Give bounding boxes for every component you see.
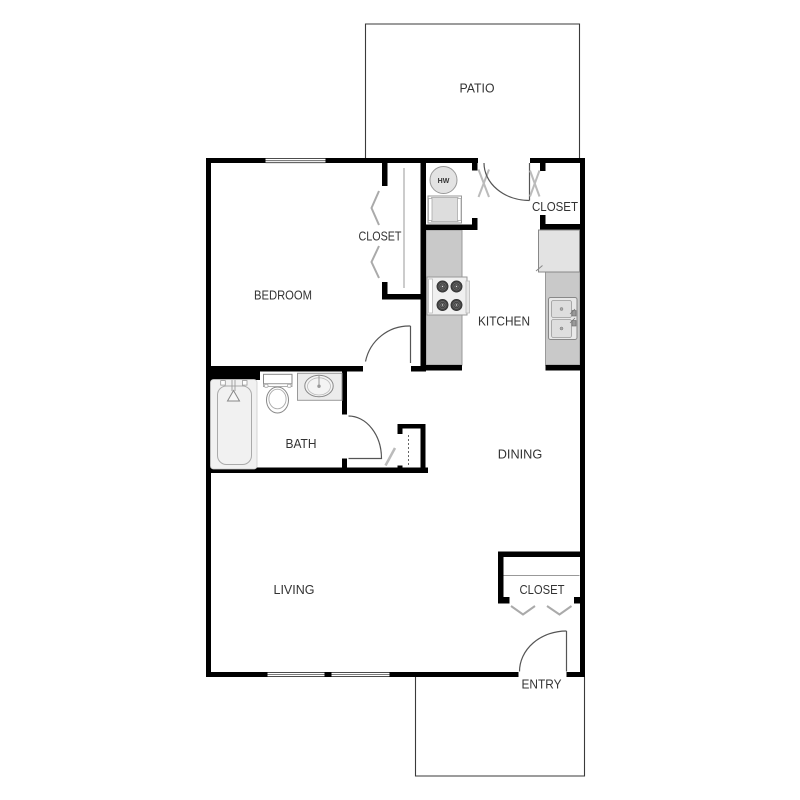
- svg-text:ENTRY: ENTRY: [522, 677, 562, 692]
- svg-text:BEDROOM: BEDROOM: [254, 288, 312, 303]
- svg-text:BATH: BATH: [286, 436, 317, 451]
- svg-text:PATIO: PATIO: [460, 81, 495, 96]
- svg-text:CLOSET: CLOSET: [359, 229, 402, 244]
- svg-text:DINING: DINING: [498, 447, 543, 462]
- svg-text:CLOSET: CLOSET: [532, 199, 578, 214]
- svg-text:KITCHEN: KITCHEN: [478, 314, 530, 329]
- svg-text:LIVING: LIVING: [274, 582, 315, 597]
- svg-text:CLOSET: CLOSET: [520, 582, 565, 597]
- svg-text:HW: HW: [438, 178, 450, 185]
